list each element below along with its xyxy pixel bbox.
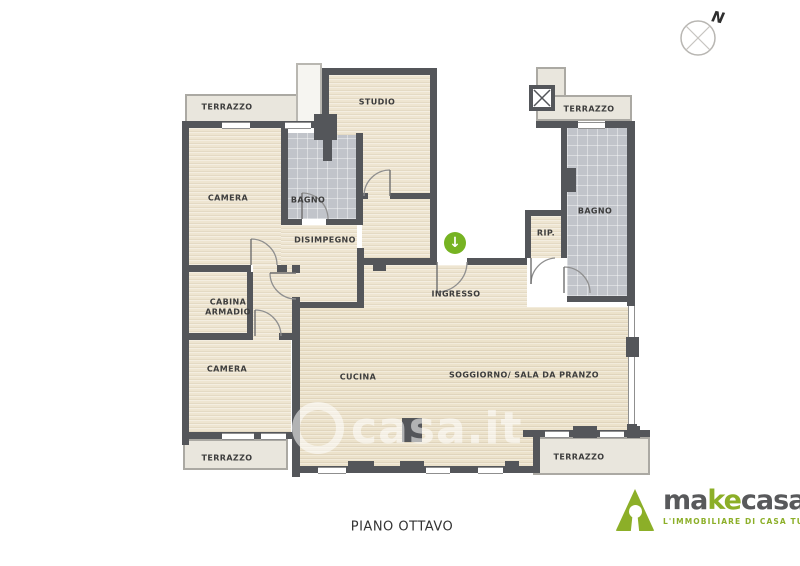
brand-name: makecasa®	[663, 487, 800, 514]
door-arc-rip	[531, 258, 555, 284]
brand-logo: makecasa® L'IMMOBILIARE DI CASA TUA	[612, 487, 800, 531]
door-arc-studio	[364, 170, 390, 196]
room-label-soggiorno: SOGGIORNO/ SALA DA PRANZO	[449, 371, 599, 380]
door-arc-camera-nord	[251, 239, 277, 265]
brand-tagline: L'IMMOBILIARE DI CASA TUA	[663, 517, 800, 526]
brand-text-block: makecasa® L'IMMOBILIARE DI CASA TUA	[663, 487, 800, 526]
compass: N	[670, 6, 732, 68]
room-label-camera-nord: CAMERA	[208, 194, 248, 203]
room-label-cabina-armadio: CABINA ARMADIO	[196, 298, 260, 319]
room-label-bagno-est: BAGNO	[578, 207, 612, 216]
room-label-bagno-ovest: BAGNO	[291, 196, 325, 205]
room-label-camera-sud: CAMERA	[207, 365, 247, 374]
room-label-terrazzo-tl: TERRAZZO	[201, 103, 252, 112]
brand-name-part2: ke	[707, 485, 741, 516]
room-label-terrazzo-bl: TERRAZZO	[201, 454, 252, 463]
room-label-studio: STUDIO	[359, 98, 396, 107]
room-label-rip: RIP.	[537, 229, 555, 238]
compass-north-label: N	[710, 7, 726, 27]
door-arcs-layer	[0, 0, 800, 566]
entrance-arrow-glyph: ↓	[449, 236, 461, 250]
room-label-cucina: CUCINA	[340, 373, 377, 382]
brand-name-part1: ma	[663, 485, 707, 516]
door-arc-corridor	[270, 273, 296, 299]
room-label-terrazzo-tr: TERRAZZO	[563, 105, 614, 114]
brand-name-part3: casa	[741, 485, 800, 516]
floor-plan: TERRAZZO CAMERA BAGNO STUDIO DISIMPEGNO …	[0, 0, 800, 566]
entrance-arrow-icon: ↓	[444, 232, 466, 254]
plan-title: PIANO OTTAVO	[351, 520, 454, 535]
door-arc-entrance	[437, 262, 467, 292]
room-label-disimpegno: DISIMPEGNO	[294, 236, 356, 245]
room-label-ingresso: INGRESSO	[431, 290, 480, 299]
brand-house-icon	[612, 487, 658, 531]
brand-keyhole-head	[629, 505, 642, 518]
room-label-terrazzo-br: TERRAZZO	[553, 453, 604, 462]
door-arc-bagno-est	[564, 267, 590, 293]
